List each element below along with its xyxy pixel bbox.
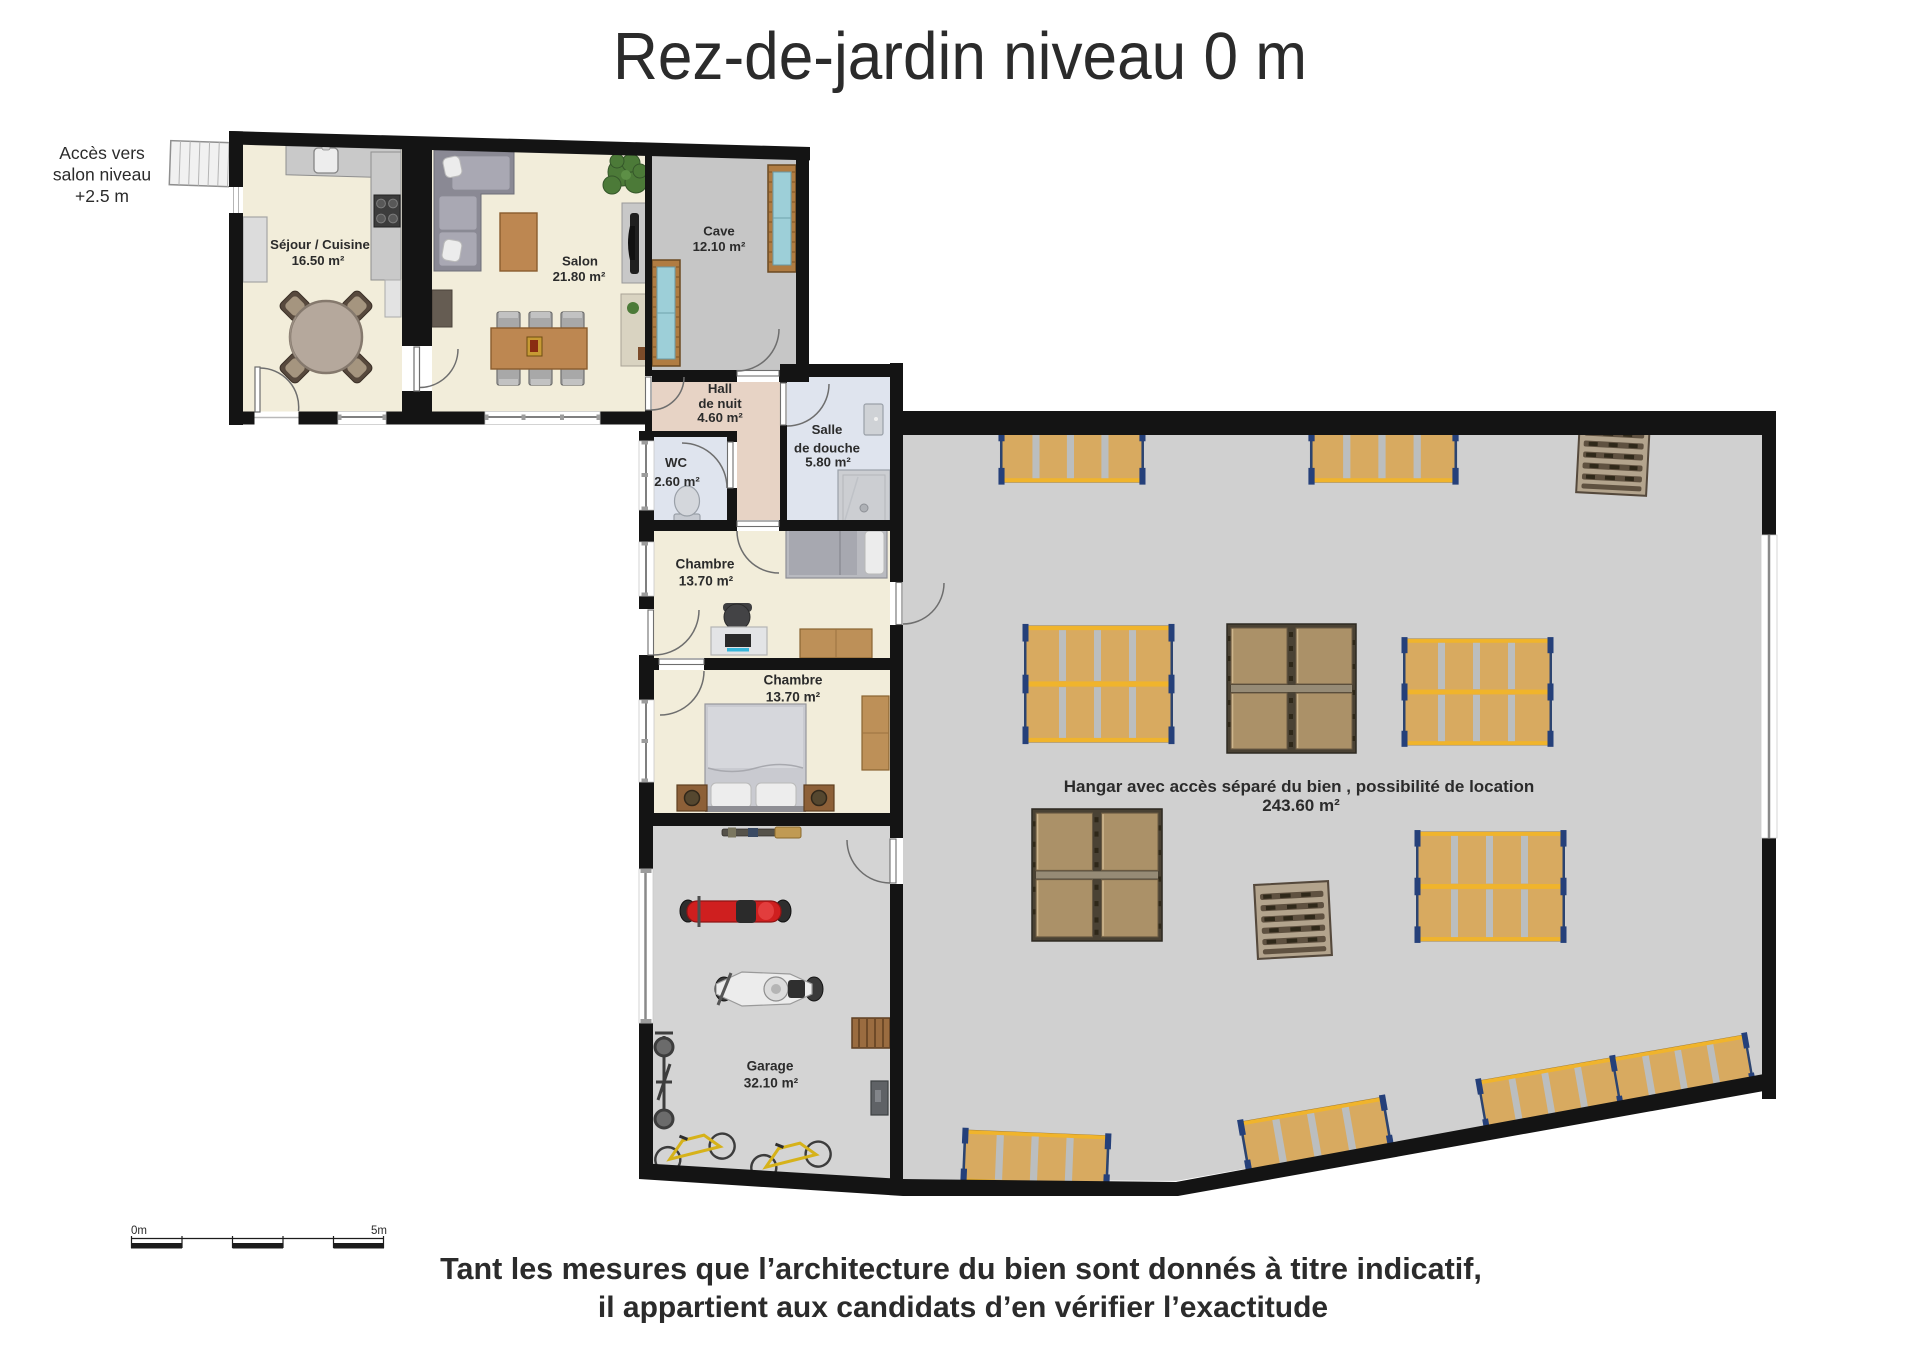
svg-text:Chambre: Chambre xyxy=(764,673,823,688)
svg-text:+2.5 m: +2.5 m xyxy=(75,186,129,206)
svg-text:12.10 m²: 12.10 m² xyxy=(693,239,746,254)
svg-text:Hall: Hall xyxy=(708,381,732,396)
svg-text:Cave: Cave xyxy=(703,224,735,239)
svg-text:il appartient aux candidats d’: il appartient aux candidats d’en vérifie… xyxy=(598,1291,1328,1324)
svg-text:Tant les mesures que l’archite: Tant les mesures que l’architecture du b… xyxy=(440,1252,1482,1286)
svg-text:32.10 m²: 32.10 m² xyxy=(744,1076,799,1091)
svg-text:Salle: Salle xyxy=(812,422,843,437)
svg-text:Garage: Garage xyxy=(747,1059,794,1074)
svg-text:de douche: de douche xyxy=(794,441,860,456)
svg-text:13.70 m²: 13.70 m² xyxy=(766,690,821,705)
svg-text:243.60 m²: 243.60 m² xyxy=(1262,796,1340,815)
svg-text:21.80 m²: 21.80 m² xyxy=(553,269,606,284)
svg-text:0m: 0m xyxy=(131,1225,147,1237)
svg-text:13.70 m²: 13.70 m² xyxy=(679,574,734,589)
svg-text:de nuit: de nuit xyxy=(698,396,742,411)
svg-text:5m: 5m xyxy=(371,1225,387,1237)
svg-text:5.80 m²: 5.80 m² xyxy=(805,455,851,470)
svg-text:Séjour / Cuisine: Séjour / Cuisine xyxy=(270,237,370,252)
svg-text:Accès vers: Accès vers xyxy=(59,143,145,163)
svg-text:4.60 m²: 4.60 m² xyxy=(697,410,743,425)
svg-text:Chambre: Chambre xyxy=(676,557,735,572)
svg-text:WC: WC xyxy=(665,455,687,470)
svg-text:16.50 m²: 16.50 m² xyxy=(292,253,345,268)
svg-text:Salon: Salon xyxy=(562,254,598,269)
svg-text:Hangar avec accès séparé du bi: Hangar avec accès séparé du bien , possi… xyxy=(1064,777,1535,796)
svg-text:salon niveau: salon niveau xyxy=(53,165,151,185)
svg-text:Rez-de-jardin niveau 0 m: Rez-de-jardin niveau 0 m xyxy=(613,19,1307,94)
svg-text:2.60 m²: 2.60 m² xyxy=(654,474,700,489)
